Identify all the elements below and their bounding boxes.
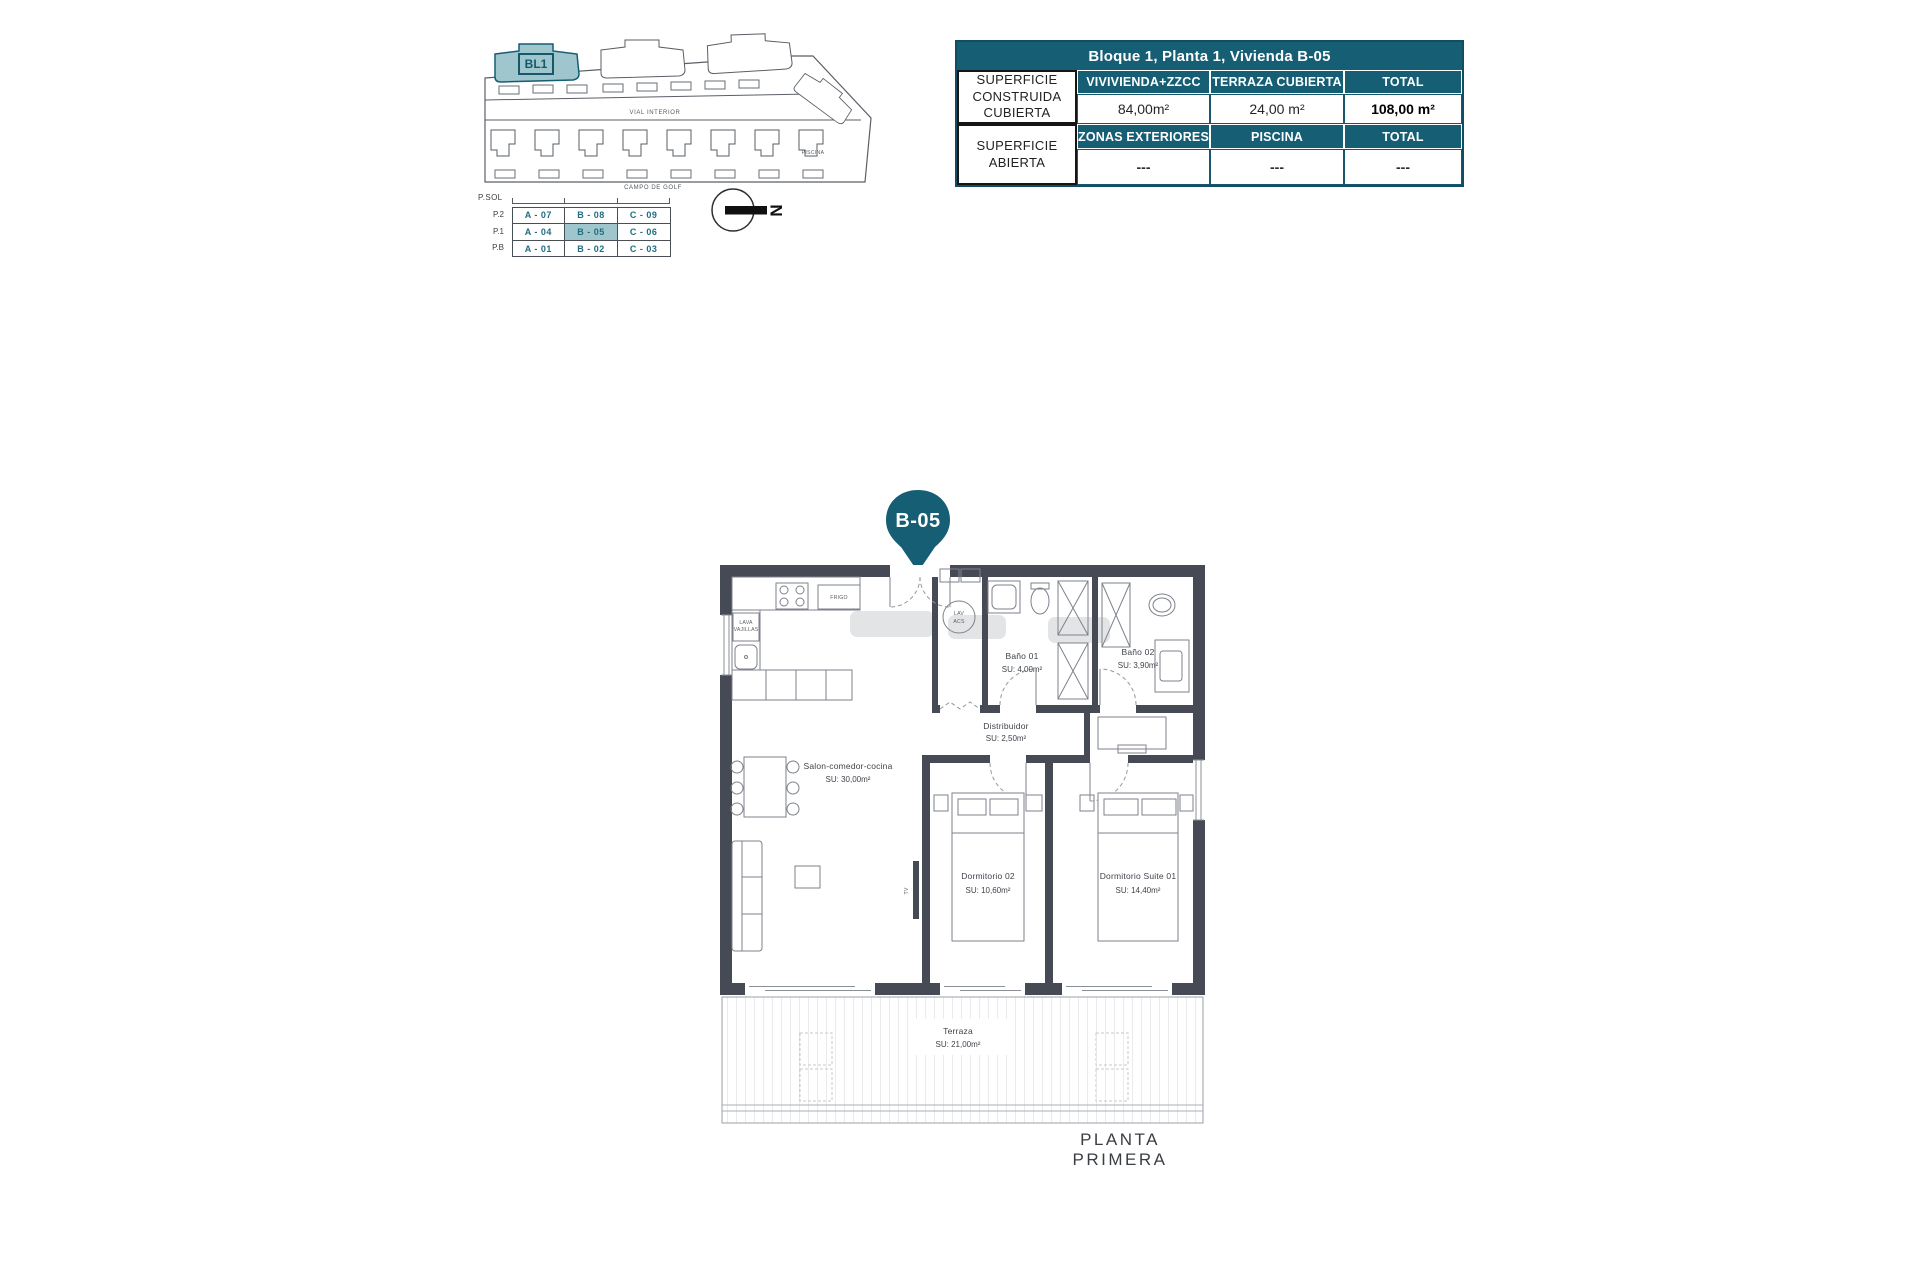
suite-area: SU: 14,40m² [1116, 886, 1161, 895]
dimension-tick [669, 198, 670, 204]
sofa [732, 841, 762, 951]
psol-label: P.SOL [478, 193, 503, 202]
plan-sheet-page: BL1 VIAL INTERIOR CAMPO DE [0, 0, 1920, 1280]
kitchen: FRIGO LAVA VAJILLAS [732, 577, 860, 700]
unit-cell-b05-highlighted: B - 05 [564, 223, 618, 241]
unit-cell-c09: C - 09 [617, 207, 671, 225]
bathroom-02: Baño 02 SU: 3,90m² [1102, 583, 1189, 692]
col-total-open: TOTAL [1344, 124, 1462, 149]
dishwasher-label-1: LAVA [739, 620, 753, 626]
desk [1098, 717, 1166, 749]
dimension-line [512, 203, 670, 204]
salon-label: Salon-comedor-cocina [803, 761, 892, 771]
bano01-area: SU: 4,00m² [1002, 665, 1043, 674]
col-total-covered: TOTAL [1344, 70, 1462, 94]
bedroom-suite: Dormitorio Suite 01 SU: 14,40m² [1080, 717, 1193, 941]
kitchen-island [732, 670, 852, 700]
living-room: TV Salon-comedor-cocina SU: 30,00m² [731, 757, 919, 951]
plan-caption: PLANTA PRIMERA [1030, 1130, 1210, 1170]
road-label: VIAL INTERIOR [630, 110, 681, 116]
north-letter: N [767, 204, 786, 216]
shower-01 [988, 581, 1020, 613]
parking-row-bottom [495, 170, 823, 178]
building-2 [601, 40, 685, 78]
open-surface-label: SUPERFICIE ABIERTA [957, 124, 1077, 185]
bano01-label: Baño 01 [1005, 651, 1038, 661]
col-zonas-exteriores: ZONAS EXTERIORES [1077, 124, 1210, 149]
nightstand [1026, 795, 1042, 811]
toilet-01 [1031, 588, 1049, 614]
nightstand [1180, 795, 1193, 811]
golf-label: CAMPO DE GOLF [624, 185, 682, 191]
building-3 [707, 33, 792, 74]
level-label-p1: P.1 [454, 227, 504, 236]
washer-label-2: ACS [953, 619, 965, 625]
tv-label: TV [904, 887, 910, 894]
bano02-area: SU: 3,90m² [1118, 661, 1159, 670]
building-4 [793, 68, 858, 127]
unit-table: A - 07 B - 08 C - 09 A - 04 B - 05 C - 0… [512, 207, 670, 257]
unit-cell-a04: A - 04 [512, 223, 566, 241]
compass-arrow [725, 206, 767, 215]
dimension-tick [617, 198, 618, 204]
value-terraza: 24,00 m² [1210, 94, 1344, 124]
kitchen-counter-top [732, 577, 860, 610]
north-compass: N [700, 180, 810, 242]
unit-cell-b08: B - 08 [564, 207, 618, 225]
unit-cell-a07: A - 07 [512, 207, 566, 225]
terraza-label-backing [912, 1019, 1008, 1055]
washer-label-1: LAV [954, 611, 964, 617]
parking-row-top [499, 80, 759, 94]
dining-table [744, 757, 786, 817]
hallway: Distribuidor SU: 2,50m² [983, 721, 1028, 743]
salon-area: SU: 30,00m² [826, 775, 871, 784]
tv [913, 861, 919, 919]
bano02-label: Baño 02 [1121, 647, 1154, 657]
kitchen-sink [735, 645, 757, 669]
bl1-label: BL1 [525, 57, 548, 71]
value-total-open: --- [1344, 149, 1462, 185]
col-piscina: PISCINA [1210, 124, 1344, 149]
distribuidor-label: Distribuidor [983, 721, 1028, 731]
level-label-pb: P.B [454, 243, 504, 252]
suite-label: Dormitorio Suite 01 [1100, 871, 1177, 881]
pin-label: B-05 [895, 510, 940, 532]
unit-level-grid: P.SOL P.2 P.1 P.B A - 07 B - 08 C - 09 A… [450, 192, 690, 272]
site-plan: BL1 VIAL INTERIOR CAMPO DE [473, 30, 873, 202]
distribuidor-area: SU: 2,50m² [986, 734, 1027, 743]
side-table [795, 866, 820, 888]
unit-cell-b02: B - 02 [564, 240, 618, 258]
unit-cell-c03: C - 03 [617, 240, 671, 258]
floor-plan: Terraza SU: 21,00m² [700, 555, 1215, 1170]
dimension-tick [564, 198, 565, 204]
watermark [850, 611, 1110, 643]
road-edge-top [485, 94, 811, 100]
terraza-deck: Terraza SU: 21,00m² [722, 997, 1203, 1123]
col-terraza-cubierta: TERRAZA CUBIERTA [1210, 70, 1344, 94]
value-vivienda: 84,00m² [1077, 94, 1210, 124]
unit-cell-c06: C - 06 [617, 223, 671, 241]
covered-surface-label: SUPERFICIE CONSTRUIDA CUBIERTA [957, 70, 1077, 124]
dorm02-label: Dormitorio 02 [961, 871, 1015, 881]
surface-info-table: Bloque 1, Planta 1, Vivienda B-05 SUPERF… [955, 40, 1464, 187]
fridge-label: FRIGO [830, 595, 847, 601]
nightstand [1080, 795, 1094, 811]
nightstand [934, 795, 948, 811]
col-vivienda-zzcc: VIVIVIENDA+ZZCC [1077, 70, 1210, 94]
value-piscina: --- [1210, 149, 1344, 185]
pool-label: PISCINA [802, 150, 825, 156]
dishwasher-label-2: VAJILLAS [734, 627, 759, 633]
dorm02-area: SU: 10,60m² [966, 886, 1011, 895]
level-label-p2: P.2 [454, 210, 504, 219]
kitchen-counter-left [732, 610, 760, 670]
info-table-title: Bloque 1, Planta 1, Vivienda B-05 [957, 42, 1462, 70]
bedroom-02: Dormitorio 02 SU: 10,60m² [934, 793, 1042, 941]
terraza-area: SU: 21,00m² [936, 1040, 981, 1049]
houses-row [491, 130, 823, 156]
laundry-closet: LAV ACS [940, 569, 980, 633]
unit-cell-a01: A - 01 [512, 240, 566, 258]
value-zonas: --- [1077, 149, 1210, 185]
terraza-label: Terraza [943, 1026, 973, 1036]
dimension-tick [512, 198, 513, 204]
value-total: 108,00 m² [1344, 94, 1462, 124]
